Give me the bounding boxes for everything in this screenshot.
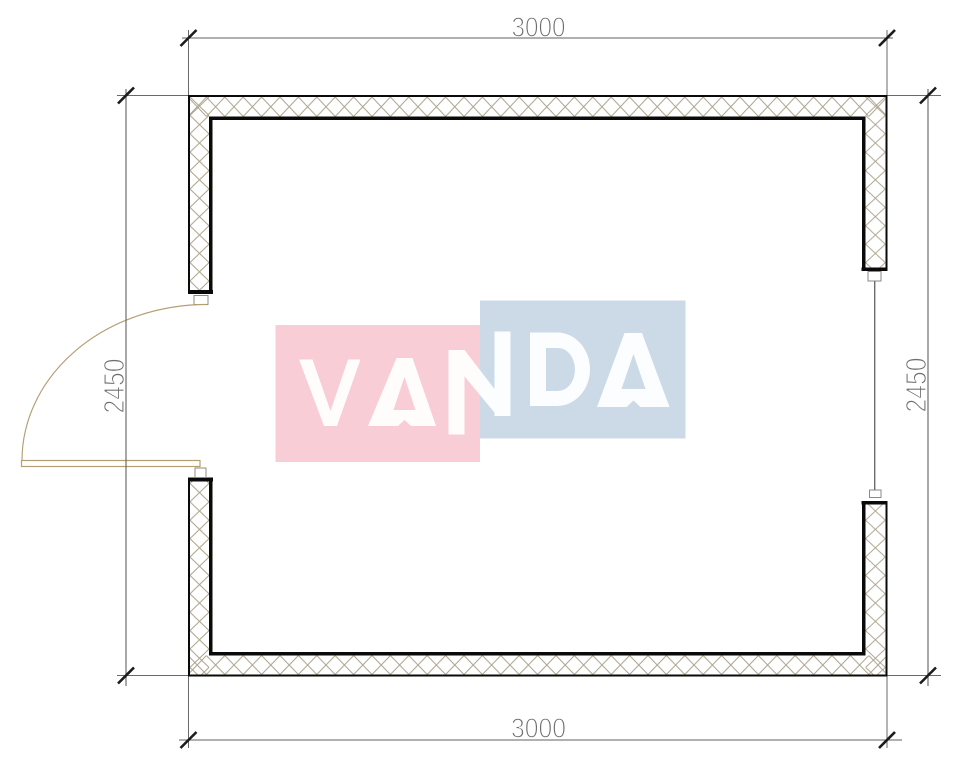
svg-text:2450: 2450 <box>99 359 131 414</box>
svg-text:3000: 3000 <box>512 12 566 43</box>
svg-text:3000: 3000 <box>511 713 566 744</box>
svg-text:2450: 2450 <box>901 358 933 413</box>
